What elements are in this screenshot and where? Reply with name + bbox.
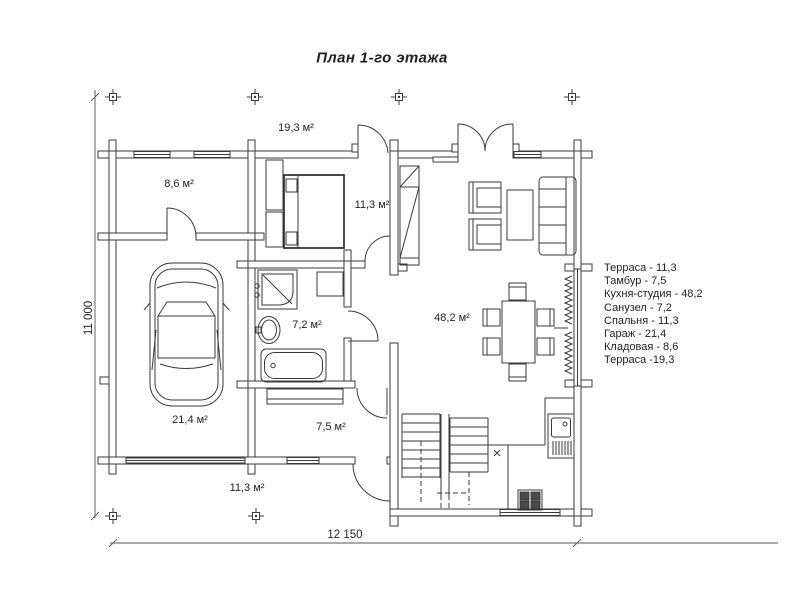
dining-chair <box>483 338 500 355</box>
hall-door <box>357 388 387 418</box>
coffee-table <box>507 190 533 240</box>
sink-mark <box>494 450 500 456</box>
dining-chair <box>537 309 554 326</box>
kitchen-counter <box>488 398 574 510</box>
room-legend: Терраса - 11,3 Тамбур - 7,5 Кухня-студия… <box>604 262 703 368</box>
radiator <box>554 276 572 374</box>
terrace-door-top <box>358 125 388 153</box>
hall-wardrobe <box>267 389 343 404</box>
room-label-garage: 21,4 м² <box>172 414 208 426</box>
legend-item: Санузел - 7,2 <box>604 302 703 315</box>
washbasin <box>256 317 280 344</box>
walls <box>98 140 592 526</box>
shower <box>255 270 297 309</box>
room-label-terrace-bottom: 11,3 м² <box>230 482 265 494</box>
legend-item: Терраса - 11,3 <box>604 262 703 275</box>
sofa <box>539 177 576 255</box>
room-label-terrace-top: 19,3 м² <box>278 122 314 134</box>
entrance-door <box>353 464 390 501</box>
armchair <box>469 182 501 213</box>
nightstand <box>266 212 283 247</box>
room-label-entrance-hall: 7,5 м² <box>316 421 346 433</box>
dimension-height-label: 11 000 <box>83 301 95 335</box>
bedroom-door <box>365 236 390 261</box>
cabinet <box>317 272 343 296</box>
kitchen-sink <box>548 414 574 458</box>
nightstand <box>266 160 283 210</box>
armchair <box>469 219 501 250</box>
floor-plan-page: План 1-го этажа <box>0 0 800 600</box>
legend-item: Гараж - 21,4 <box>604 328 703 341</box>
bed <box>284 175 344 248</box>
bathroom-door <box>348 311 378 341</box>
room-label-storeroom: 8,6 м² <box>164 178 194 190</box>
legend-item: Кладовая - 8,6 <box>604 341 703 354</box>
storeroom-door <box>167 208 196 237</box>
wardrobe <box>400 166 419 265</box>
dining-group <box>483 283 554 381</box>
bathtub <box>261 349 326 382</box>
dining-chair <box>537 338 554 355</box>
dimension-width-label: 12 150 <box>327 529 362 541</box>
legend-item: Тамбур - 7,5 <box>604 275 703 288</box>
living-group <box>469 177 576 255</box>
room-label-kitchen-studio: 48,2 м² <box>434 312 470 324</box>
dining-table <box>502 301 535 363</box>
dining-chair <box>483 309 500 326</box>
legend-item: Кухня-студия - 48,2 <box>604 288 703 301</box>
legend-item: Спальня - 11,3 <box>604 315 703 328</box>
dining-chair <box>509 283 526 300</box>
staircase <box>402 414 488 508</box>
legend-item: Терраса -19,3 <box>604 354 703 367</box>
cooktop <box>518 490 542 510</box>
french-doors <box>458 124 513 151</box>
car-top-view <box>144 263 229 406</box>
room-label-bedroom: 11,3 м² <box>355 199 390 211</box>
dining-chair <box>509 364 526 381</box>
room-label-bathroom: 7,2 м² <box>292 319 322 331</box>
